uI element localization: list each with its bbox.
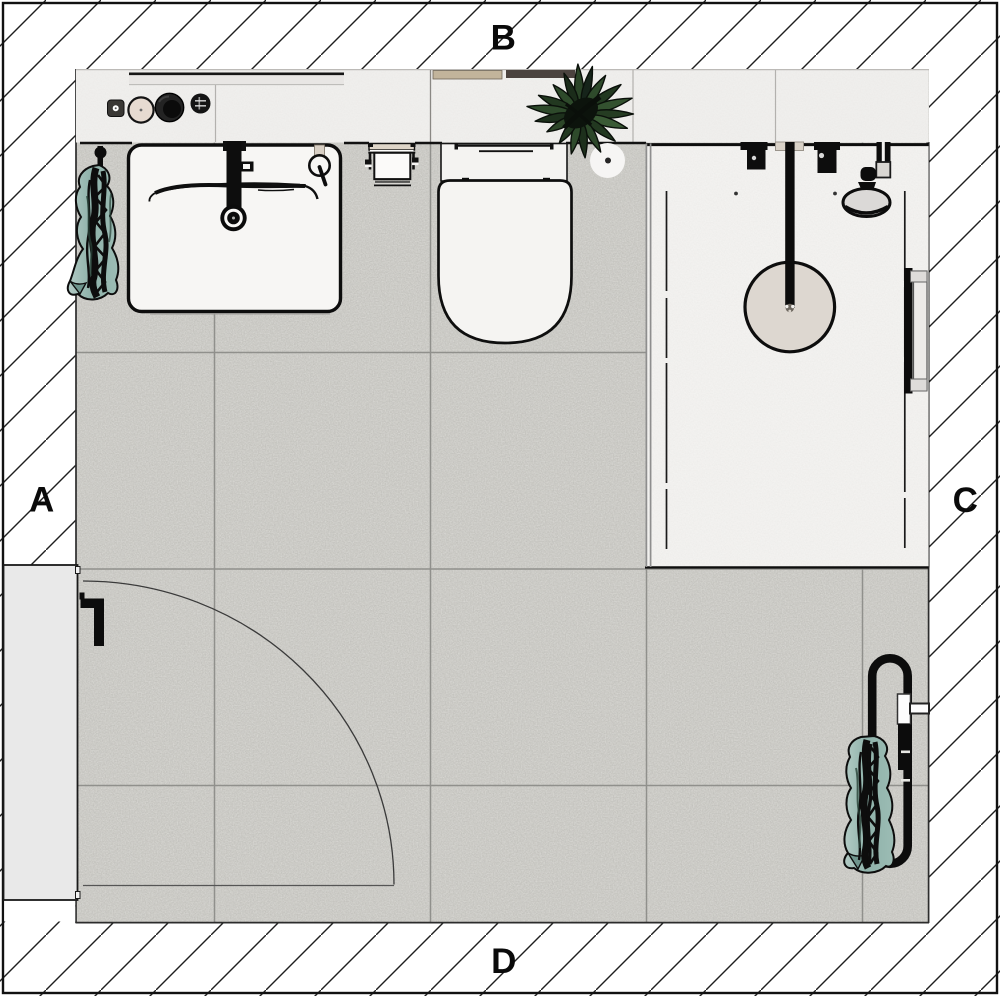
svg-text:C: C: [953, 481, 978, 520]
svg-text:A: A: [29, 480, 54, 519]
svg-text:D: D: [491, 942, 516, 981]
svg-text:B: B: [491, 19, 516, 58]
